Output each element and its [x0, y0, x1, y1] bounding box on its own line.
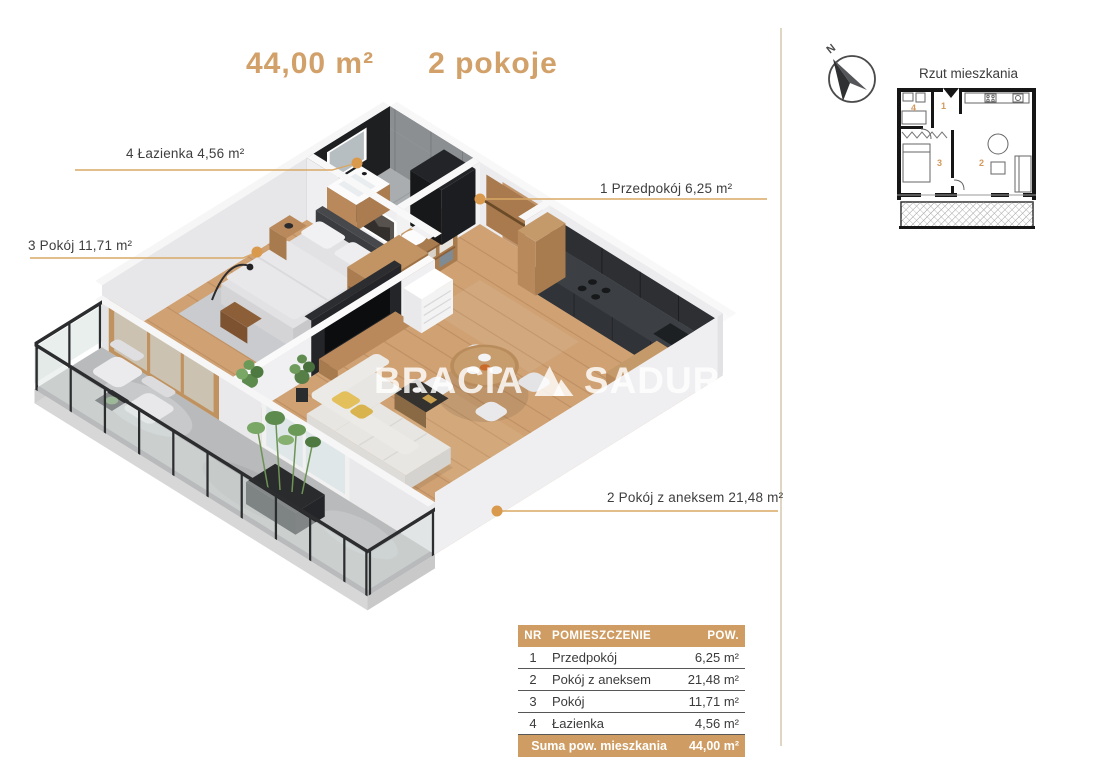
- header-nr: NR: [518, 630, 548, 642]
- apartment-3d: [34, 98, 736, 611]
- compass-n-label: N: [824, 42, 838, 56]
- mini-plan-number-4: 4: [911, 103, 916, 113]
- brand-logo-icon: [534, 366, 574, 396]
- table-row: 2 Pokój z aneksem 21,48 m²: [518, 669, 745, 691]
- footer-value: 44,00 m²: [667, 739, 745, 753]
- compass-icon: N: [824, 42, 875, 102]
- row-name: Pokój z aneksem: [548, 672, 667, 687]
- row-area: 11,71 m²: [667, 694, 745, 709]
- header-area: POW.: [667, 630, 745, 642]
- mini-plan-number-3: 3: [937, 158, 942, 168]
- title-rooms-count: 2 pokoje: [428, 47, 558, 81]
- mini-floor-plan: 4 1 3 2: [897, 88, 1036, 229]
- table-row: 3 Pokój 11,71 m²: [518, 691, 745, 713]
- mini-plan-title: Rzut mieszkania: [895, 66, 1042, 81]
- table-row: 4 Łazienka 4,56 m²: [518, 713, 745, 735]
- header-name: POMIESZCZENIE: [548, 630, 667, 642]
- label-hallway: 1 Przedpokój 6,25 m²: [600, 181, 732, 196]
- rooms-table: NR POMIESZCZENIE POW. 1 Przedpokój 6,25 …: [518, 625, 745, 757]
- row-area: 6,25 m²: [667, 650, 745, 665]
- watermark: BRACIA SADURS: [374, 360, 746, 402]
- row-nr: 1: [518, 650, 548, 665]
- watermark-part2: SADURS: [584, 360, 746, 402]
- table-row: 1 Przedpokój 6,25 m²: [518, 647, 745, 669]
- title-area: 44,00 m²: [246, 47, 374, 81]
- mini-plan-number-2: 2: [979, 158, 984, 168]
- row-name: Łazienka: [548, 716, 667, 731]
- row-nr: 2: [518, 672, 548, 687]
- row-nr: 4: [518, 716, 548, 731]
- page-title: 44,00 m² 2 pokoje: [246, 47, 558, 81]
- row-area: 21,48 m²: [667, 672, 745, 687]
- label-room-with-kitchenette: 2 Pokój z aneksem 21,48 m²: [607, 490, 783, 505]
- watermark-part1: BRACIA: [374, 360, 524, 402]
- row-area: 4,56 m²: [667, 716, 745, 731]
- mini-plan-number-1: 1: [941, 101, 946, 111]
- footer-label: Suma pow. mieszkania: [518, 739, 667, 753]
- rooms-table-header: NR POMIESZCZENIE POW.: [518, 625, 745, 647]
- label-bathroom: 4 Łazienka 4,56 m²: [126, 146, 244, 161]
- row-name: Przedpokój: [548, 650, 667, 665]
- rooms-table-footer: Suma pow. mieszkania 44,00 m²: [518, 735, 745, 757]
- label-room: 3 Pokój 11,71 m²: [28, 238, 132, 253]
- row-nr: 3: [518, 694, 548, 709]
- row-name: Pokój: [548, 694, 667, 709]
